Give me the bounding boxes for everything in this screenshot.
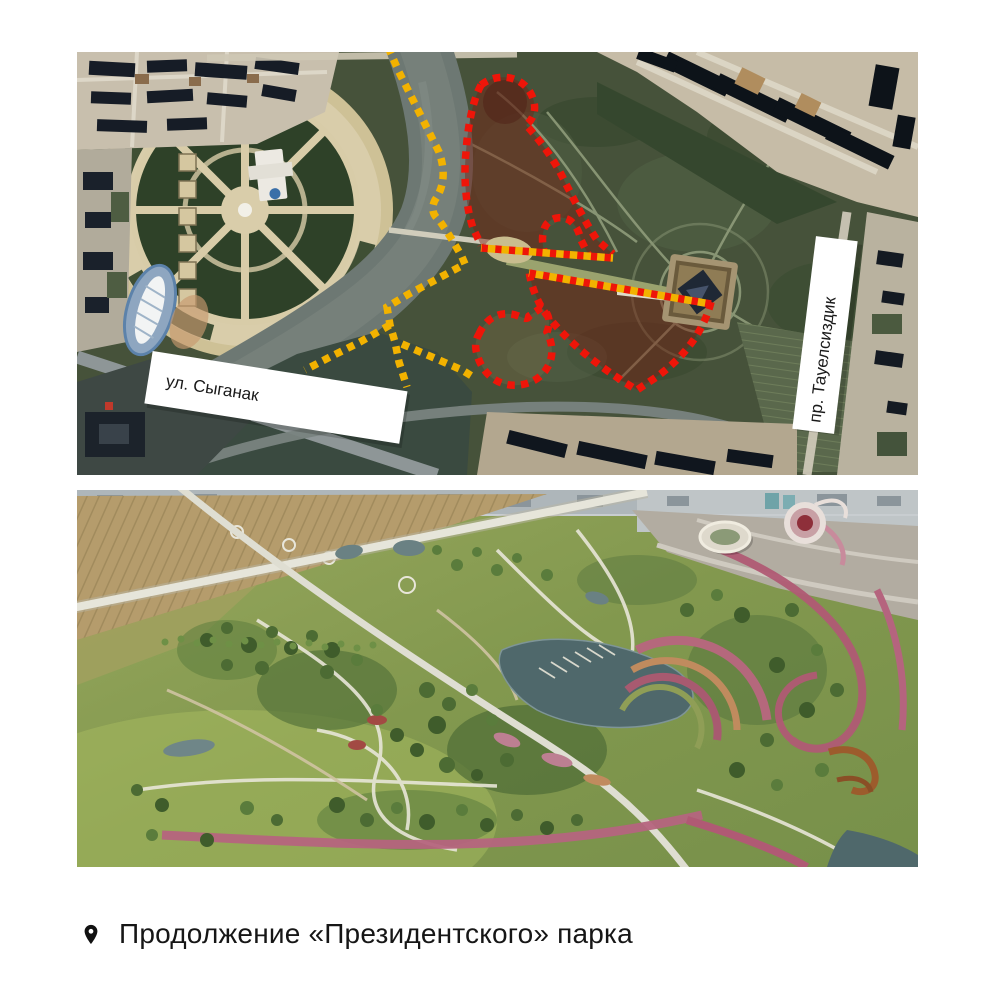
post-canvas: пр. Тауелсиздик ул. Сыганак [0, 0, 992, 1000]
location-pin-icon [80, 919, 102, 950]
pyramid-monument [662, 254, 739, 331]
red-roof-accent [105, 402, 113, 410]
caption-text: Продолжение «Президентского» парка [119, 919, 633, 950]
satellite-map-illustration: пр. Тауелсиздик ул. Сыганак [77, 52, 918, 475]
glass-tower [765, 493, 779, 509]
park-render-illustration [77, 490, 918, 867]
park-render-figure [77, 490, 918, 867]
satellite-map-figure: пр. Тауелсиздик ул. Сыганак [77, 52, 918, 475]
caption: Продолжение «Президентского» парка [80, 912, 633, 956]
top-road [207, 54, 517, 58]
